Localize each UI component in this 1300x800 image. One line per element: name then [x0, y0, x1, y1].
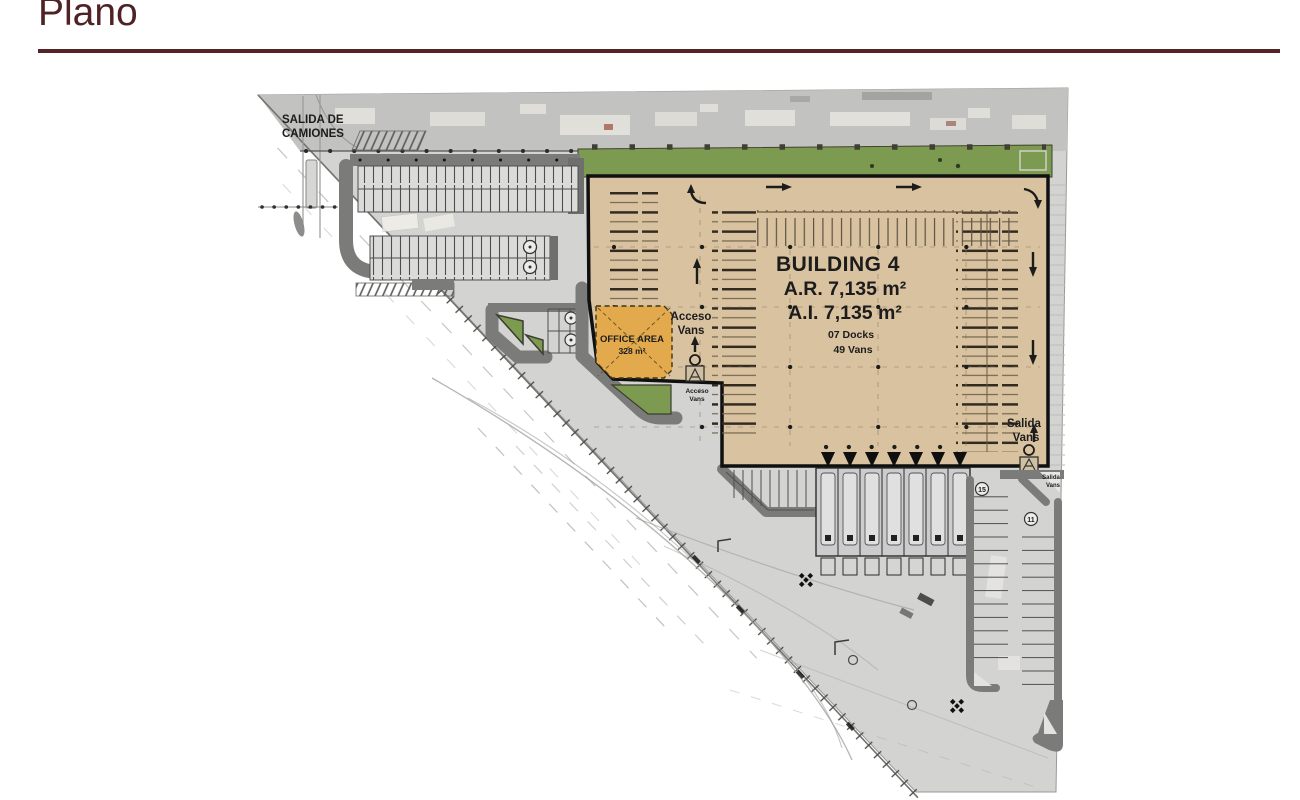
stall-count-badge: 11 [1027, 517, 1035, 524]
parking-block-upper [358, 166, 578, 212]
building-name: BUILDING 4 [776, 253, 900, 276]
gate-post-icon [1024, 445, 1034, 455]
right-edge-strip [1050, 180, 1065, 470]
salida-camiones-label: SALIDA DE [282, 114, 344, 126]
building-vans-count: 49 Vans [833, 344, 872, 356]
salida-vans-small-label: Vans [1046, 483, 1061, 489]
truck-bay [821, 473, 967, 545]
salida-vans-label: Salida [1007, 418, 1041, 430]
salida-camiones-label: CAMIONES [282, 128, 344, 140]
office-area-label: OFFICE AREA [600, 334, 664, 345]
salida-vans-label: Vans [1013, 432, 1040, 444]
acceso-vans-label: Vans [678, 325, 705, 337]
acceso-vans-small-label: Vans [689, 396, 705, 403]
bay-end-boxes [821, 558, 967, 575]
building-roof-area: A.R. 7,135 m² [784, 278, 907, 300]
parking-column-left: 15 [970, 480, 1008, 688]
stall-count-badge: 15 [978, 487, 986, 494]
gate-post-icon [690, 355, 700, 365]
acceso-vans-small-label: Acceso [685, 388, 708, 395]
acceso-vans-label: Acceso [671, 311, 712, 323]
office-area-size: 328 m² [619, 346, 646, 356]
site-plan: BUILDING 4 A.R. 7,135 m² A.I. 7,135 m² 0… [0, 0, 1300, 800]
building-docks-count: 07 Docks [828, 329, 874, 341]
building-4: BUILDING 4 A.R. 7,135 m² A.I. 7,135 m² 0… [588, 176, 1048, 471]
salida-vans-small-label: Salida [1042, 475, 1060, 481]
parking-block-lower [370, 236, 558, 280]
slide: Plano [0, 0, 1300, 800]
building-interior-area: A.I. 7,135 m² [788, 302, 902, 324]
office-area: OFFICE AREA 328 m² [596, 306, 672, 378]
